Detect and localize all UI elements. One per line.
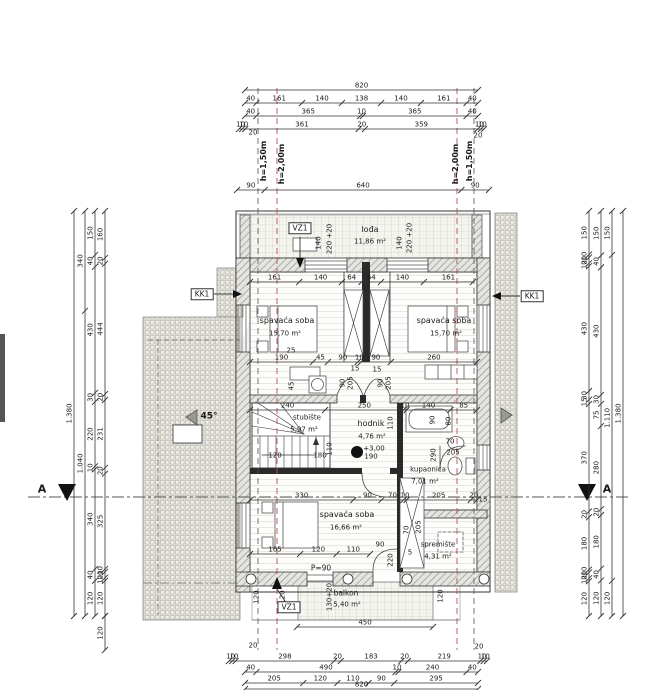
dim-label: 140 [422,402,435,410]
dim-label: h=1,50m [466,141,474,181]
dim-label: 15 [373,367,382,374]
dim-label: 40 [468,664,477,672]
dim-label: 490 [319,664,332,672]
room-area: 4,31 m² [424,554,451,561]
dim-label: 220 [87,427,95,440]
dim-chain: 19045901090260 [247,354,480,366]
dim-label: 340 [77,254,85,267]
dim-chain: 15040430302201034040120 [87,208,99,619]
dim-label: 5 [408,550,412,557]
dim-label: 90 [376,542,385,549]
dim-chain: 2402501014085 [247,402,480,414]
dim-label: 40 [246,108,255,116]
room-label: spavaća soba [320,511,375,519]
dim-label: 120 [312,546,325,554]
dim-label: 90 [471,182,480,190]
dim-label: 161 [437,95,450,103]
dim-label: 10 [401,492,410,500]
dim-label: 20 [475,644,484,651]
dim-label: 219 [437,653,450,661]
dim-label: 20 [249,130,258,137]
dim-label: 430 [87,323,95,336]
dim-label: 205 [416,520,423,533]
room-label: spremište [421,542,456,549]
dim-label: 140 [397,236,404,249]
section-label: A [38,484,47,495]
dim-label: 45 [316,354,325,362]
dim-chain: 820 [242,82,481,94]
dim-label: 190 [275,354,288,362]
dim-label: 365 [408,108,421,116]
dim-label: 40 [593,570,601,579]
dim-chain: 1.380 [66,208,78,619]
dim-chain: 4016114013814016140 [242,95,481,107]
dim-label: 161 [273,95,286,103]
dim-label: 90 [430,416,437,425]
dim-label: 120 [254,590,261,603]
room-area: 15,70 m² [269,331,301,338]
dim-label: 290 [431,448,438,461]
dim-chain: 120 [97,613,109,653]
room-area: 5,97 m² [290,427,317,434]
dim-label: 365 [302,108,315,116]
dim-chain: 3401.040 [77,208,89,619]
dim-label: 138 [355,95,368,103]
room-area: 15,70 m² [430,331,462,338]
dim-label: 110 [388,416,395,429]
dim-label: 205 [432,492,445,500]
dim-chain: 160204442023120325102010120 [97,208,109,619]
dim-label: 430 [593,324,601,337]
dim-label: 20 [97,393,105,402]
dim-label: 120 [97,592,105,605]
dim-chain: 1501.110120 [604,208,616,619]
dim-label: 20 [97,466,105,475]
dim-label: 110 [347,546,360,554]
dim-label: 90 [363,492,372,500]
dim-label: 85 [459,402,468,410]
dim-label: 120 [581,592,589,605]
room-label: spavaća soba [417,317,472,325]
dim-label: 20 [474,133,483,140]
dim-label: 40 [468,95,477,103]
dim-label: 820 [355,82,368,90]
dim-label: 325 [97,515,105,528]
dim-label: 280 [593,461,601,474]
dim-chain: 1.380 [615,208,627,619]
dim-label: 161 [268,274,281,282]
dim-chain: 450 [294,619,436,631]
dim-label: 45 [289,382,296,391]
room-label: stubište [293,415,321,422]
dim-label: 140 [316,236,323,249]
dim-chain: 150102010430301537020180102010120 [581,208,593,619]
dim-label: 205 [446,450,459,457]
dim-label: 10 [481,653,490,661]
dim-label: 450 [358,619,371,627]
dim-label: 140 [396,274,409,282]
dim-label: 10 [97,575,105,584]
dim-label: 205 [386,376,393,389]
dim-label: 10 [581,260,589,269]
dim-label: 161 [442,274,455,282]
dim-label: 20 [249,643,258,650]
dim-label: 260 [427,354,440,362]
dim-label: 220 +20 [327,224,334,254]
dim-label: 640 [356,182,369,190]
dim-label: 64 [347,274,356,282]
dim-label: 20 [581,510,589,519]
dim-label: 140 [314,274,327,282]
dim-label: 820 [355,681,368,689]
dim-label: 140 [394,95,407,103]
section-label: A [603,484,612,495]
dim-label: 180 [313,453,326,460]
dim-label: 120 [268,453,281,460]
detail-marker-kk1: KK1 [191,288,214,300]
dim-label: 1.380 [615,403,623,423]
dim-label: 40 [246,95,255,103]
dim-label: 430 [581,322,589,335]
floorplan-canvas: AR [0,0,658,690]
dim-chain: 1611406464140161 [247,274,476,286]
room-label: hodnik [358,420,385,428]
dim-label: 90 [246,182,255,190]
detail-marker-kk1: KK1 [521,290,544,302]
dim-label: 1.380 [66,403,74,423]
dim-label: 10 [357,108,366,116]
dim-label: 120 [97,626,105,639]
dim-label: 330 [295,492,308,500]
dim-label: 240 [281,402,294,410]
dim-label: 64 [367,274,376,282]
dim-label: 340 [87,512,95,525]
dim-label: 361 [295,121,308,129]
dim-label: 90 [377,675,386,683]
room-area: 7,01 m² [411,479,438,486]
dim-label: 150 [87,226,95,239]
dim-label: 10 [401,402,410,410]
dim-label: 80 [446,417,453,426]
room-label: kupaonica [410,467,446,474]
dim-label: 205 [267,675,280,683]
dim-label: 298 [278,653,291,661]
dim-label: 110 [327,442,334,455]
dim-label: 10 [393,664,402,672]
detail-marker-vz1: VZ1 [288,222,311,234]
dim-label: 240 [426,664,439,672]
dim-label: 70 [388,492,397,500]
dim-label: 120 [87,592,95,605]
dim-chain: 1010361203591010 [236,121,487,133]
dim-label: 220 +20 [407,223,414,253]
dim-label: 40 [246,664,255,672]
angle-label: 45° [200,413,217,422]
dim-label: 359 [415,121,428,129]
level-label: +3,00 [363,446,384,453]
dim-label: 90 [378,379,385,388]
dim-label: 75 [593,411,601,420]
dim-label: 160 [97,228,105,241]
dim-label: 20 [593,508,601,517]
dim-label: 205 [348,376,355,389]
dim-label: 1.040 [77,453,85,473]
dim-label: 90 [338,354,347,362]
dim-label: 10 [478,121,487,129]
dim-label: 20 [97,256,105,265]
dim-label: 150 [581,226,589,239]
dim-label: 10 [355,354,364,362]
dim-label: 20 [469,492,478,500]
dim-label: 40 [468,108,477,116]
room-area: 11,86 m² [354,239,386,246]
room-label: balkon [334,589,359,597]
dim-label: h=2,00m [452,144,460,184]
dim-label: 120 [604,592,612,605]
dim-label: 70 [404,526,411,535]
dim-label: 295 [429,675,442,683]
dim-label: 15 [351,366,360,373]
dim-label: 90 [340,379,347,388]
dim-label: 30 [593,395,601,404]
dim-chain: 1504043030752802018040120 [593,208,605,619]
detail-marker-vz1: VZ1 [277,601,300,613]
dim-label: 444 [97,322,105,336]
dim-label: 150 [593,227,601,240]
dim-label: 25 [287,348,296,355]
dim-label: 10 [230,653,239,661]
room-area: 16,66 m² [330,525,362,532]
dim-label: 183 [364,653,377,661]
dim-label: 165 [268,546,281,554]
dim-label: 120 [438,589,445,602]
dim-label: 15 [581,397,589,406]
dim-label: 231 [97,427,105,440]
door-label: P=90 [311,564,331,572]
dim-label: 120 [314,675,327,683]
dim-label: 40 [593,257,601,266]
dim-label: 140 [315,95,328,103]
dim-label: 10 [87,463,95,472]
room-area: 4,76 m² [358,434,385,441]
dim-label: 10 [581,575,589,584]
dim-chain: 165120110 [247,546,373,558]
dim-label: 30 [87,393,95,402]
dim-label: h=2,00m [278,144,286,184]
dim-label: 180 [593,535,601,548]
dim-label: 180 [581,537,589,550]
dim-label: 40 [87,570,95,579]
dim-label: 20 [400,653,409,661]
dim-chain: 33090701020520 [247,492,480,504]
dim-label: 20 [357,121,366,129]
dim-label: 10 [239,121,248,129]
room-label: lođa [361,226,378,234]
dim-label: 70 [446,439,455,446]
room-area: 5,40 m² [333,602,360,609]
dim-label: 20 [333,653,342,661]
dim-chain: 403651036540 [242,108,481,120]
dim-label: 130+20 [327,583,334,611]
dim-chain: 101029820183202191010 [226,653,490,665]
dim-chain: 404901024040 [242,664,481,676]
dim-label: 1.110 [604,408,612,428]
room-label: spavaća soba [260,317,315,325]
dim-label: 370 [581,451,589,464]
dim-label: 120 [593,592,601,605]
dim-label: 40 [87,256,95,265]
dim-label: h=1,50m [260,141,268,181]
dim-label: 90 [371,354,380,362]
dim-label: 190 [364,454,377,461]
dim-label: 220 [388,553,395,566]
dim-label: 150 [604,226,612,239]
dim-label: 250 [358,402,371,410]
dim-label: 15 [479,497,488,504]
